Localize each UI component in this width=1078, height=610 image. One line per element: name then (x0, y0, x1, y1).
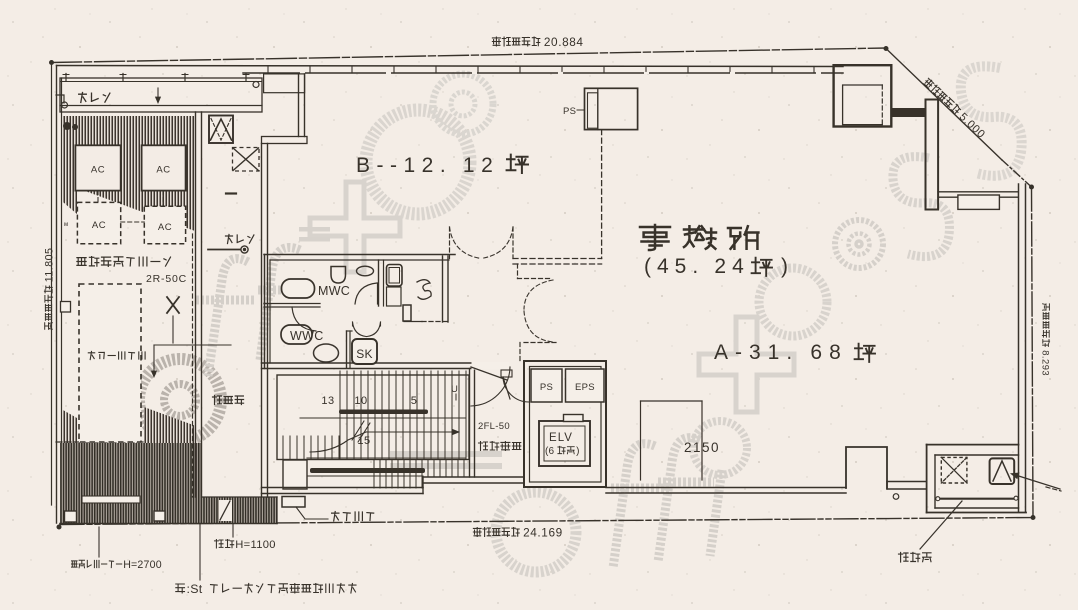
svg-text:8.293: 8.293 (1040, 350, 1051, 376)
svg-text:U: U (451, 384, 458, 395)
svg-text:SK: SK (356, 347, 373, 361)
svg-text:MWC: MWC (318, 284, 350, 298)
svg-text:м: м (64, 222, 68, 228)
svg-text:AC: AC (158, 222, 172, 233)
svg-text:20.884: 20.884 (544, 35, 584, 49)
svg-text:PS: PS (563, 106, 576, 117)
svg-text:H=2700: H=2700 (123, 559, 162, 571)
svg-text:): ) (781, 255, 788, 278)
svg-text:5: 5 (411, 395, 418, 407)
svg-text:PS: PS (540, 382, 553, 393)
svg-text:H=1100: H=1100 (235, 539, 275, 551)
svg-text:EPS: EPS (575, 382, 595, 393)
svg-text:13: 13 (321, 395, 334, 407)
svg-text:2150: 2150 (684, 440, 720, 455)
svg-text::St: :St (187, 582, 203, 596)
svg-text:ELV: ELV (549, 432, 573, 444)
svg-text:A-31. 68: A-31. 68 (714, 341, 848, 364)
svg-text:24.169: 24.169 (523, 526, 563, 540)
svg-text:(6: (6 (545, 446, 555, 457)
svg-text:B--12. 12: B--12. 12 (356, 154, 499, 177)
svg-text:15: 15 (357, 435, 370, 447)
svg-text:AC: AC (92, 220, 106, 231)
svg-text:2R-50C: 2R-50C (146, 273, 187, 285)
svg-text:AC: AC (91, 165, 105, 176)
svg-text:10: 10 (354, 395, 367, 407)
svg-text:): ) (576, 446, 580, 457)
svg-text:WWC: WWC (290, 329, 324, 343)
svg-text:(45. 24: (45. 24 (644, 255, 750, 278)
svg-text:AC: AC (156, 165, 170, 176)
svg-text:11.805: 11.805 (44, 248, 56, 283)
svg-text:2FL-50: 2FL-50 (478, 421, 510, 432)
